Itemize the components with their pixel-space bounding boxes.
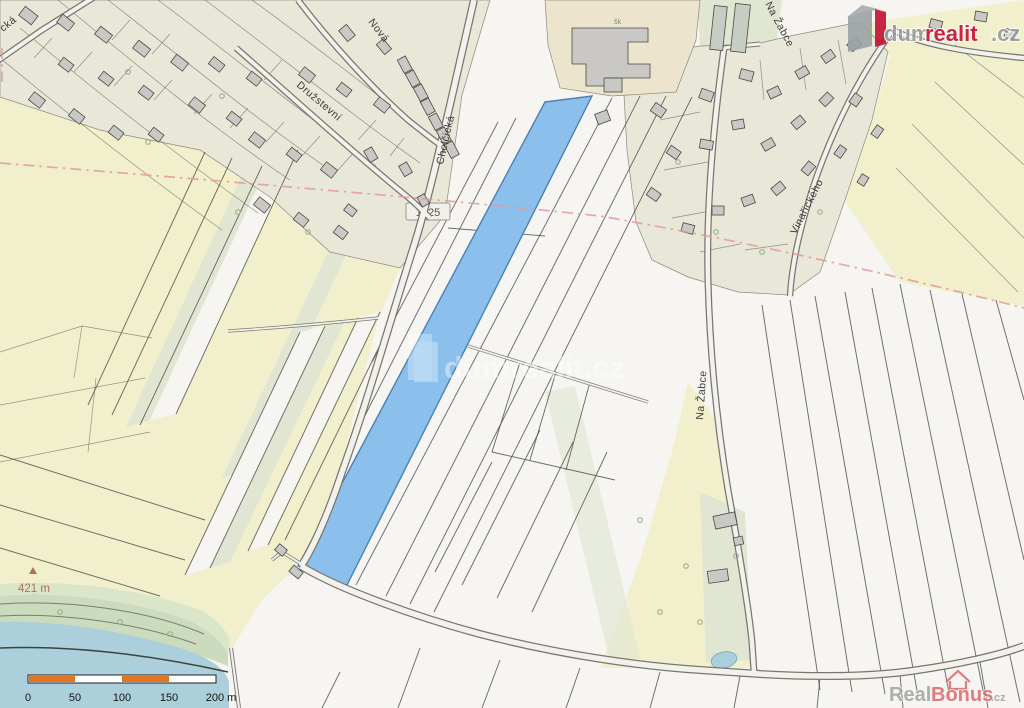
brand-logo-text-dum: dum xyxy=(884,21,930,46)
watermark-center-text: dumrealit.cz xyxy=(444,350,625,385)
map-canvas: 1225 xyxy=(0,0,1024,708)
realbonus-text-real: Real xyxy=(889,684,931,706)
brand-logo-text-cz: .cz xyxy=(991,21,1020,46)
brand-logo-text-realit: realit xyxy=(925,21,978,46)
scale-tick-150: 150 xyxy=(160,692,178,704)
realbonus-text-cz: .cz xyxy=(991,692,1006,704)
scale-tick-200: 200 m xyxy=(206,692,237,704)
scale-tick-0: 0 xyxy=(25,692,31,704)
school-label: šk xyxy=(614,19,622,26)
spot-height-label: 421 m xyxy=(18,583,50,595)
cadastral-map-image: 1225 xyxy=(0,0,1024,708)
realbonus-text-bonus: Bonus xyxy=(931,684,993,706)
scale-tick-50: 50 xyxy=(69,692,81,704)
scale-tick-100: 100 xyxy=(113,692,131,704)
